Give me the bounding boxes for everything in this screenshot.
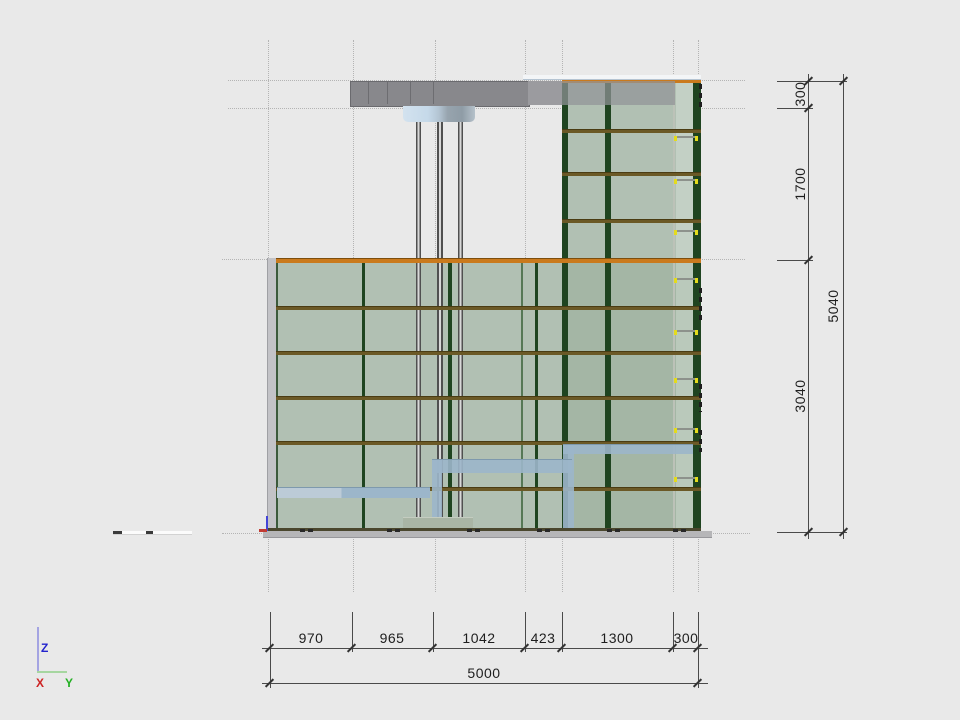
canopy-joint [433, 82, 434, 104]
dim-total-line-right[interactable] [843, 74, 844, 539]
floor-line[interactable] [276, 306, 701, 310]
landing-beam[interactable] [563, 444, 693, 454]
window-handle [695, 477, 698, 482]
dimension-label[interactable]: 5040 [826, 284, 840, 328]
window-handle [695, 428, 698, 433]
window-handle [674, 428, 677, 433]
floor-fixing-marker [387, 529, 400, 532]
cad-viewport[interactable]: 970 965 1042 423 1300 300 5000 300 1700 … [0, 0, 960, 720]
window-handle [674, 179, 677, 184]
window-transom[interactable] [675, 378, 695, 380]
edge-marker-dashes [699, 288, 702, 322]
dimension-label[interactable]: 3040 [793, 374, 807, 418]
floor-line[interactable] [276, 396, 701, 400]
floor-line[interactable] [562, 172, 701, 176]
window-transom[interactable] [675, 278, 695, 280]
window-handle [674, 136, 677, 141]
window-transom[interactable] [675, 330, 695, 332]
window-handle [695, 330, 698, 335]
window-handle [695, 378, 698, 383]
window-transom[interactable] [675, 477, 695, 479]
column[interactable] [416, 122, 421, 531]
window-handle [674, 230, 677, 235]
canopy-joint [410, 82, 411, 104]
canopy-beam-over-tower[interactable] [562, 81, 675, 105]
window-handle [695, 278, 698, 283]
floor-fixing-marker [537, 529, 550, 532]
axis-x-label: X [36, 677, 44, 689]
window-handle [674, 330, 677, 335]
floor-line[interactable] [562, 129, 701, 133]
floor-fixing-marker [300, 529, 315, 532]
dimension-label[interactable]: 965 [370, 631, 414, 645]
axis-y-line [37, 671, 67, 673]
landing-beam[interactable] [277, 487, 430, 498]
floor-line[interactable] [562, 219, 701, 223]
ground-slab[interactable] [263, 531, 712, 538]
window-transom[interactable] [675, 136, 695, 138]
window-transom[interactable] [675, 428, 695, 430]
origin-x-axis-icon [259, 529, 267, 532]
dimension-label[interactable]: 300 [793, 72, 807, 116]
window-handle [674, 378, 677, 383]
window-handle [674, 477, 677, 482]
canopy-beam[interactable] [350, 81, 530, 107]
axis-z-label: Z [41, 642, 48, 654]
axis-z-line [37, 627, 39, 672]
window-transom[interactable] [675, 179, 695, 181]
floor-fixing-marker [673, 529, 686, 532]
canopy-joint [368, 82, 369, 104]
dimension-label[interactable]: 1300 [595, 631, 639, 645]
dim-chain-line-bottom[interactable] [262, 648, 708, 649]
dimension-label[interactable]: 423 [521, 631, 565, 645]
window-handle [674, 278, 677, 283]
floor-line[interactable] [276, 351, 701, 355]
edge-marker-dashes [699, 430, 702, 452]
floor-fixing-marker [467, 529, 480, 532]
edge-marker-dashes [699, 84, 702, 111]
dim-extension-line[interactable] [777, 81, 847, 82]
dim-extension-line[interactable] [270, 612, 271, 688]
dimension-label[interactable]: 5000 [462, 666, 506, 680]
dim-chain-line-right[interactable] [808, 74, 809, 539]
axis-y-label: Y [65, 677, 73, 689]
canopy-joint [387, 82, 388, 104]
roof-strip[interactable] [523, 75, 701, 80]
dimension-label[interactable]: 1700 [793, 162, 807, 206]
window-handle [695, 230, 698, 235]
edge-marker-dashes [699, 384, 702, 412]
window-handle [695, 136, 698, 141]
canopy-beam-light[interactable] [528, 81, 562, 105]
window-handle [695, 179, 698, 184]
dimension-label[interactable]: 970 [289, 631, 333, 645]
landing-beam[interactable] [432, 459, 572, 473]
floor-fixing-marker [607, 529, 620, 532]
ground-marker [113, 531, 122, 534]
landing-support[interactable] [563, 444, 574, 529]
dim-extension-line[interactable] [698, 612, 699, 688]
slab-edge-mid[interactable] [276, 258, 701, 263]
dimension-label[interactable]: 1042 [457, 631, 501, 645]
column-hub[interactable] [403, 106, 475, 122]
dimension-label[interactable]: 300 [664, 631, 708, 645]
window-transom[interactable] [675, 230, 695, 232]
dim-total-line-bottom[interactable] [262, 683, 708, 684]
ground-marker [146, 531, 153, 534]
dim-extension-line[interactable] [777, 532, 847, 533]
